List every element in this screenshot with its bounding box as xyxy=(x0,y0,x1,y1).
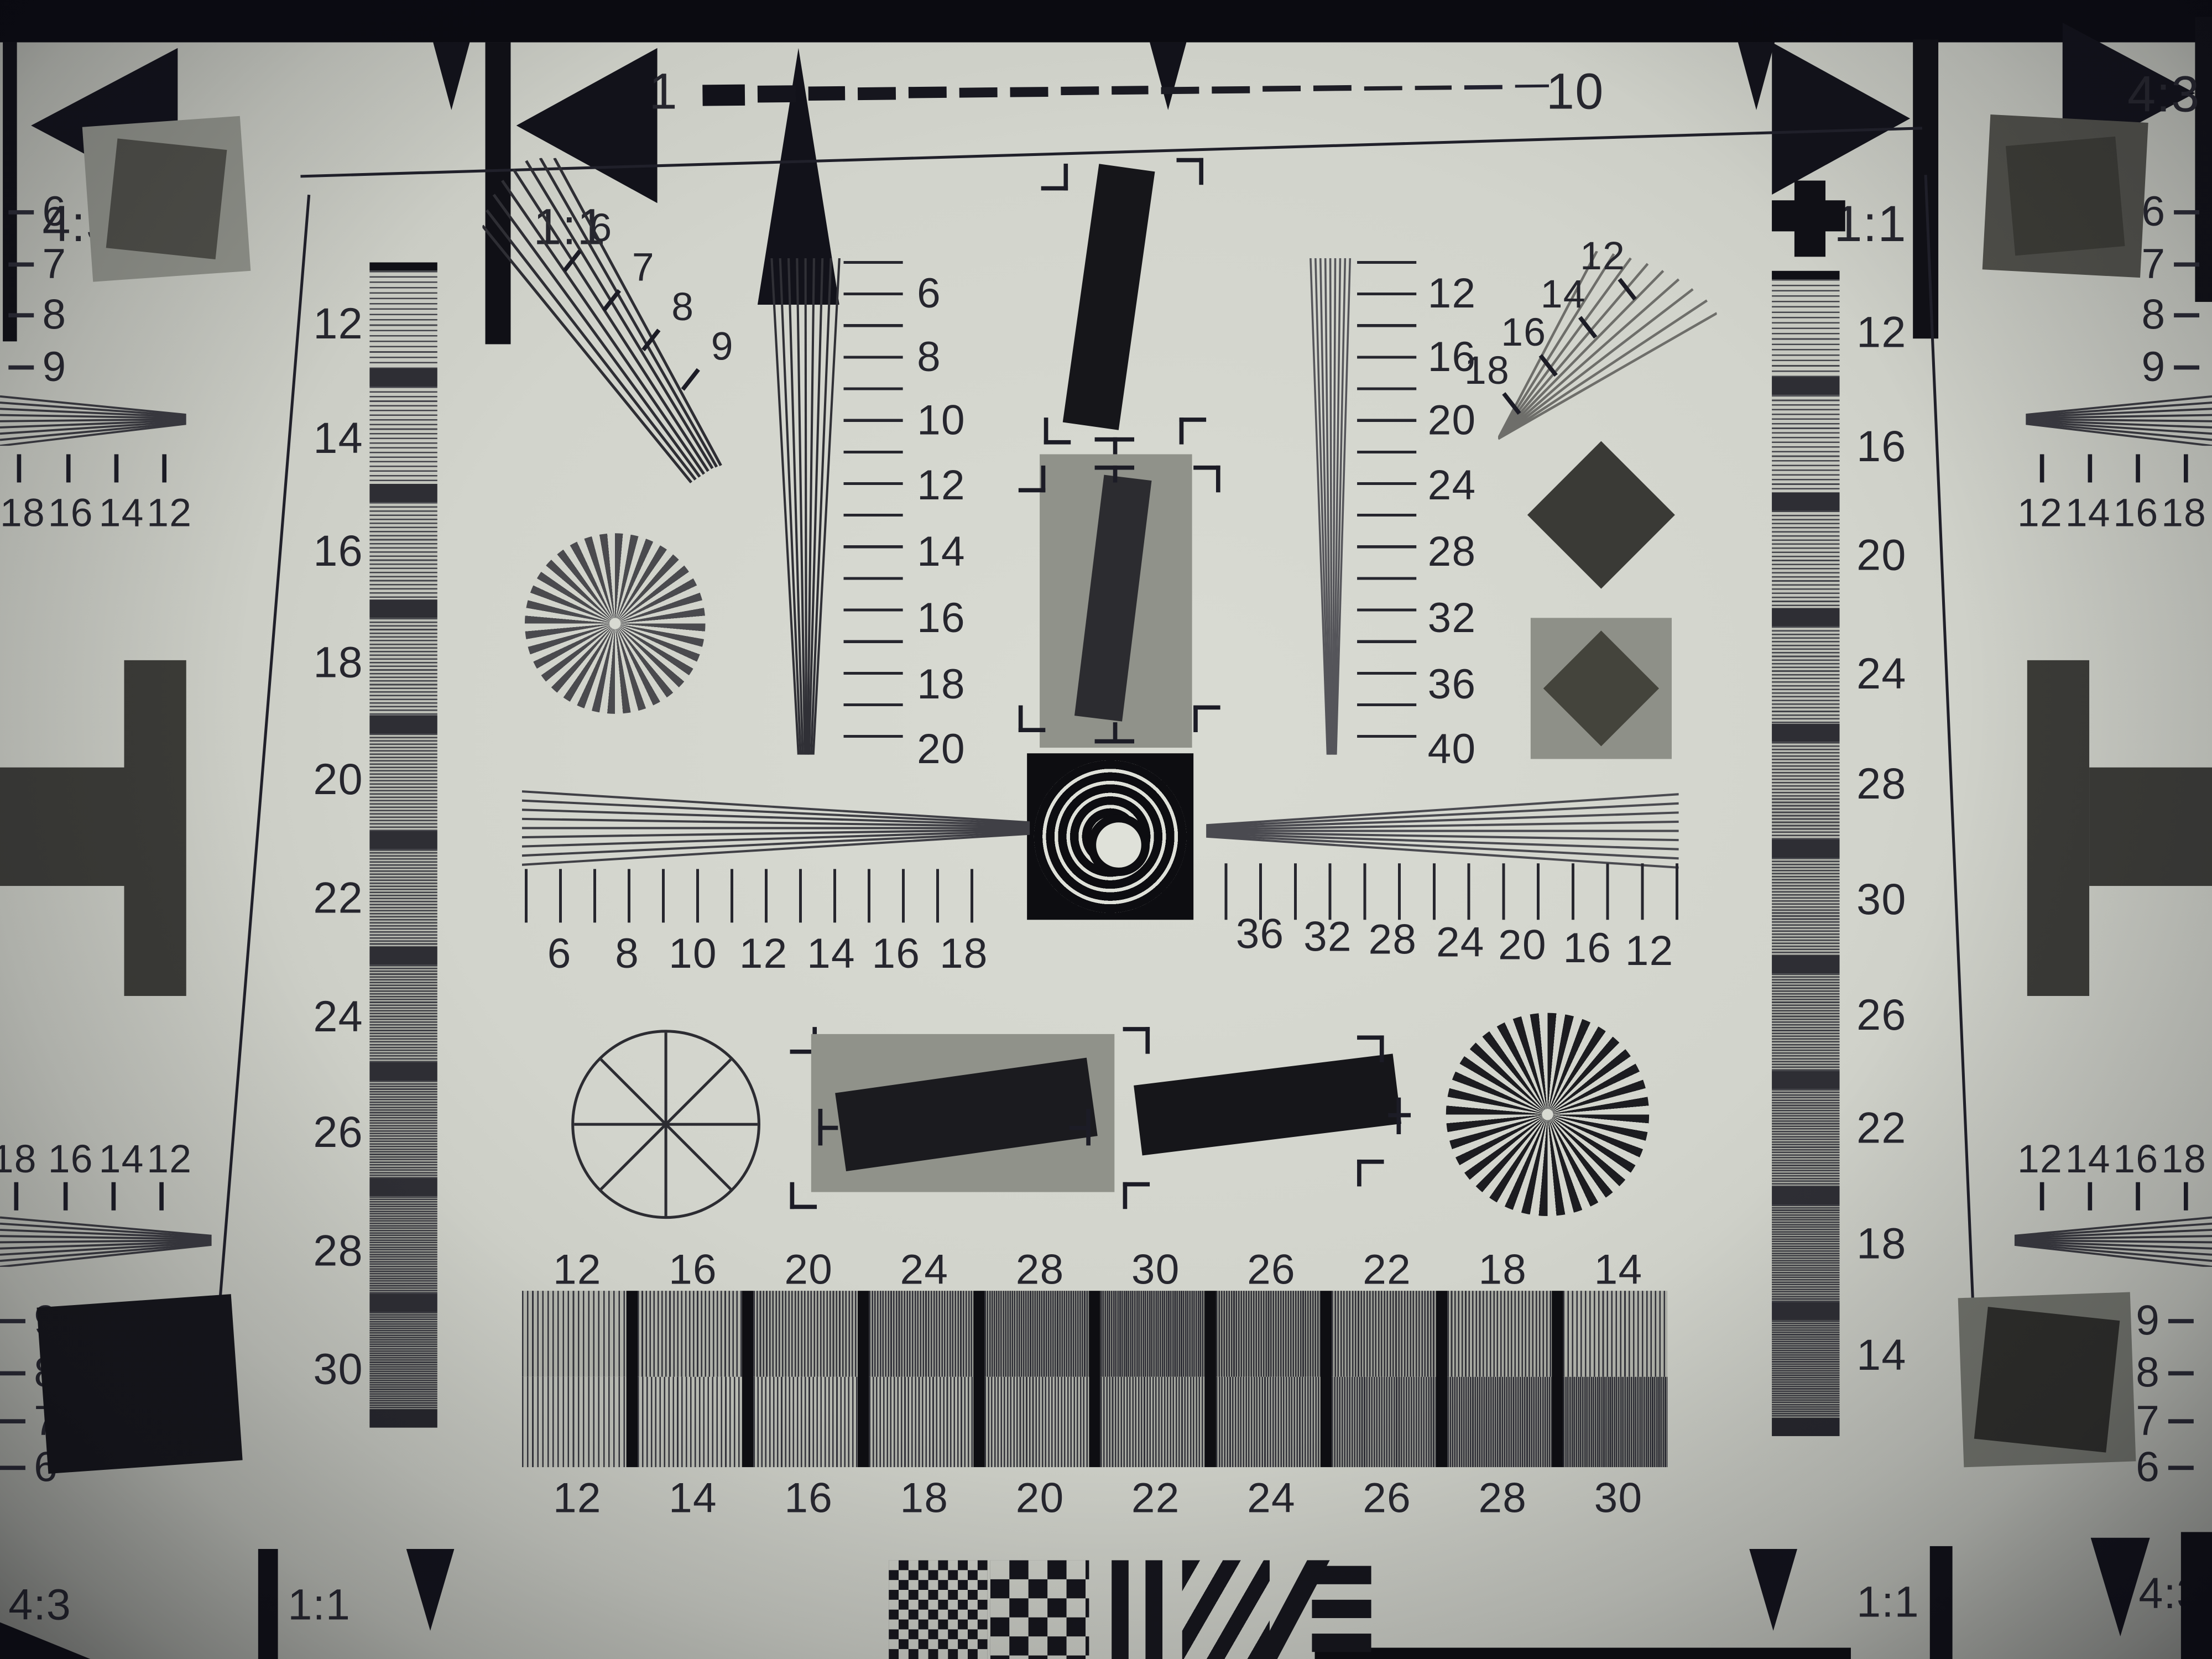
wedge-tick xyxy=(64,1182,68,1211)
checkerboard-coarse xyxy=(990,1560,1089,1659)
right-upper-scale-row: 8 xyxy=(2141,292,2199,340)
left-lower-horizontal-fan xyxy=(0,1216,212,1267)
wedge-tick xyxy=(162,454,166,482)
aspect-label-bottom-left-43: 4:3 xyxy=(8,1580,71,1631)
checkerboard-fine xyxy=(889,1560,988,1659)
wedge-scale-label: 12 xyxy=(147,1137,192,1182)
grayscale-step-label: 28 xyxy=(1856,759,1907,810)
crop-triangle-icon xyxy=(1749,1549,1797,1631)
wedge-scale-label: 12 xyxy=(2017,491,2063,536)
grayscale-step-label: 20 xyxy=(1856,530,1907,581)
grayscale-step-label: 24 xyxy=(1856,649,1907,700)
patch-bottom-label: 30 xyxy=(1594,1475,1643,1524)
aspect-crop-bar xyxy=(1930,1546,1953,1659)
wedge-tick xyxy=(2040,1182,2044,1211)
horizontal-scale-label: 12 xyxy=(1625,928,1674,977)
patch-bottom-label: 26 xyxy=(1363,1475,1411,1524)
bottom-black-band xyxy=(1315,1648,1851,1659)
patch-divider xyxy=(973,1291,984,1467)
scale-value: 8 xyxy=(2141,292,2166,338)
scale-dash xyxy=(8,365,34,369)
inner-tilted-square xyxy=(106,138,227,259)
registration-bracket xyxy=(1044,418,1071,444)
scale-dash xyxy=(2174,262,2200,266)
grayscale-step-label: 22 xyxy=(313,873,363,924)
vertical-scale-label: 20 xyxy=(1428,398,1477,446)
grayscale-step-label: 20 xyxy=(313,755,363,806)
ruler-dash-row xyxy=(702,72,1549,109)
chart-border-line-right xyxy=(1924,175,1975,1308)
wedge-scale-label: 18 xyxy=(2161,1137,2206,1182)
vertical-scale-label: 40 xyxy=(1428,727,1477,775)
left-vertical-wedge xyxy=(769,258,842,755)
wedge-scale-label: 16 xyxy=(2113,491,2158,536)
vertical-bar-pattern xyxy=(1112,1560,1129,1659)
grayscale-step-label: 18 xyxy=(313,638,363,688)
wedge-scale-label: 12 xyxy=(2017,1137,2063,1182)
resolution-patch xyxy=(1447,1291,1552,1467)
wedge-tick xyxy=(17,454,22,482)
registration-bracket xyxy=(1180,418,1206,444)
horizontal-scale-label: 12 xyxy=(739,931,788,979)
horizontal-scale-label: 14 xyxy=(807,931,855,979)
inner-diamond xyxy=(1543,630,1659,746)
scale-dash xyxy=(2168,1418,2194,1423)
patch-divider xyxy=(742,1291,753,1467)
grayscale-step-label: 26 xyxy=(1856,990,1907,1041)
wedge-tick xyxy=(2040,454,2044,482)
scale-dash xyxy=(2168,1318,2194,1323)
scale-dash xyxy=(2168,1465,2194,1469)
left-upper-scale-row: 9 xyxy=(8,344,66,392)
resolution-patch xyxy=(985,1291,1089,1467)
wedge-tick xyxy=(2136,1182,2140,1211)
horizontal-scale-label: 32 xyxy=(1303,914,1352,962)
right-lower-scale-row: 6 xyxy=(2136,1444,2194,1493)
grayscale-step-label: 14 xyxy=(313,413,363,464)
wedge-tick xyxy=(112,1182,116,1211)
wedge-scale-label: 14 xyxy=(99,491,144,536)
vertical-scale-label: 8 xyxy=(917,335,941,383)
vertical-scale-label: 28 xyxy=(1428,529,1477,577)
patch-bottom-label: 20 xyxy=(1016,1475,1065,1524)
registration-bracket xyxy=(1123,1027,1150,1053)
patch-bottom-label: 22 xyxy=(1131,1475,1180,1524)
right-upper-scale-row: 6 xyxy=(2141,189,2199,237)
grayscale-step-column-right xyxy=(1772,271,1839,1436)
grayscale-step-label: 30 xyxy=(1856,875,1907,926)
registration-t-mark xyxy=(1113,466,1118,483)
wedge-scale-label: 16 xyxy=(48,1137,93,1182)
wedge-scale-label: 18 xyxy=(2161,491,2206,536)
grayscale-step-label: 28 xyxy=(313,1226,363,1277)
patch-top-label: 28 xyxy=(1016,1247,1065,1295)
fan-label: 9 xyxy=(711,325,734,370)
grayscale-step-label: 30 xyxy=(313,1344,363,1395)
right-lower-scale-row: 9 xyxy=(2136,1298,2194,1346)
grayscale-step-label: 12 xyxy=(1856,307,1907,358)
inner-tilted-square xyxy=(2006,137,2125,256)
scale-dash xyxy=(0,1318,25,1323)
patch-divider xyxy=(858,1291,869,1467)
resolution-patch-row xyxy=(522,1291,1667,1467)
wedge-scale-label: 18 xyxy=(0,491,45,536)
wedge-scale-label: 16 xyxy=(48,491,93,536)
tilted-black-square xyxy=(36,1294,242,1474)
grayscale-step-column-left xyxy=(369,262,437,1427)
horizontal-scale-label: 28 xyxy=(1368,917,1417,965)
left-horizontal-tick-scale xyxy=(525,869,1004,922)
crop-triangle-icon xyxy=(1738,43,1775,110)
ruler-start-label: 1 xyxy=(649,62,677,121)
left-t-bar-vertical xyxy=(124,660,186,996)
patch-bottom-label: 24 xyxy=(1247,1475,1296,1524)
vertical-scale-label: 24 xyxy=(1428,463,1477,511)
concentric-rings-target xyxy=(1027,753,1193,920)
tilted-gray-square xyxy=(82,116,251,282)
patch-bottom-label: 28 xyxy=(1478,1475,1527,1524)
wedge-tick xyxy=(159,1182,164,1211)
vertical-scale-label: 18 xyxy=(917,661,966,709)
horizontal-scale-label: 10 xyxy=(669,931,717,979)
wedge-scale-label: 14 xyxy=(2065,1137,2111,1182)
patch-top-label: 22 xyxy=(1363,1247,1411,1295)
scale-value: 7 xyxy=(2136,1398,2160,1444)
registration-t-mark xyxy=(1070,1126,1089,1130)
patch-top-label: 16 xyxy=(669,1247,717,1295)
vertical-scale-label: 32 xyxy=(1428,596,1477,644)
scale-dash xyxy=(8,262,34,266)
left-vertical-tick-scale xyxy=(844,261,903,758)
wedge-tick xyxy=(114,454,119,482)
horizontal-scale-label: 20 xyxy=(1498,922,1547,971)
scale-value: 9 xyxy=(2136,1298,2160,1344)
horizontal-scale-label: 36 xyxy=(1236,911,1285,959)
wedge-scale-label: 18 xyxy=(0,1137,37,1182)
grayscale-step-label: 22 xyxy=(1856,1103,1907,1154)
wedge-tick xyxy=(66,454,71,482)
center-right-horizontal-fan xyxy=(1206,793,1679,869)
horizontal-scale-label: 18 xyxy=(940,931,988,979)
vertical-scale-label: 16 xyxy=(917,596,966,644)
scale-dash xyxy=(8,312,34,317)
grayscale-step-label: 26 xyxy=(313,1108,363,1159)
aspect-triangle-icon xyxy=(1772,43,1910,195)
right-t-bar-vertical xyxy=(2027,660,2089,996)
siemens-star xyxy=(1446,1013,1649,1216)
grayscale-step-label: 16 xyxy=(1856,422,1907,473)
vertical-scale-label: 14 xyxy=(917,529,966,577)
fan-label: 12 xyxy=(1580,234,1625,279)
registration-bracket xyxy=(1019,706,1045,732)
patch-top-label: 14 xyxy=(1594,1247,1643,1295)
vertical-scale-label: 12 xyxy=(1428,271,1477,319)
registration-bracket xyxy=(1357,1035,1384,1062)
fan-label: 6 xyxy=(589,206,612,251)
right-upper-horizontal-fan xyxy=(2026,395,2212,446)
vertical-scale-label: 36 xyxy=(1428,661,1477,709)
patch-divider xyxy=(1552,1291,1563,1467)
rings-center-dot xyxy=(1088,814,1150,876)
scale-value: 8 xyxy=(2136,1350,2160,1396)
siemens-star xyxy=(525,533,706,714)
resolution-patch xyxy=(869,1291,973,1467)
crop-triangle-icon xyxy=(406,1549,455,1631)
wedge-tick xyxy=(14,1182,19,1211)
patch-top-label: 18 xyxy=(1478,1247,1527,1295)
patch-divider xyxy=(1089,1291,1100,1467)
registration-t-mark xyxy=(818,1126,838,1130)
vertical-scale-label: 12 xyxy=(917,463,966,511)
tilted-gray-square xyxy=(1983,114,2148,278)
scale-dash xyxy=(0,1418,25,1423)
horizontal-scale-label: 16 xyxy=(872,931,921,979)
inner-tilted-square xyxy=(1974,1307,2120,1453)
registration-bracket xyxy=(1357,1160,1384,1186)
ruler-end-label: 10 xyxy=(1546,62,1604,121)
left-upper-scale-row: 8 xyxy=(8,292,66,340)
resolution-patch xyxy=(1216,1291,1321,1467)
grayscale-step-label: 14 xyxy=(1856,1331,1907,1381)
scale-dash xyxy=(2174,365,2200,369)
scale-value: 8 xyxy=(43,292,67,338)
horizontal-scale-label: 8 xyxy=(615,931,639,979)
left-upper-scale-row: 6 xyxy=(8,189,66,237)
diagonal-stripe-pattern xyxy=(1182,1560,1270,1659)
fan-label: 14 xyxy=(1541,272,1586,317)
horizontal-scale-label: 24 xyxy=(1436,920,1485,968)
wedge-tick xyxy=(2184,454,2188,482)
vertical-scale-label: 10 xyxy=(917,398,966,446)
registration-t-mark xyxy=(1113,722,1118,742)
patch-bottom-label: 16 xyxy=(784,1475,833,1524)
scale-value: 9 xyxy=(43,344,67,390)
aspect-label-bottom-right-11: 1:1 xyxy=(1856,1577,1919,1628)
right-vertical-tick-scale xyxy=(1357,261,1416,758)
patch-bottom-label: 14 xyxy=(669,1475,717,1524)
center-left-horizontal-fan xyxy=(522,790,1030,867)
patch-top-label: 12 xyxy=(553,1247,602,1295)
scale-value: 6 xyxy=(43,189,67,236)
resolution-test-chart-photo: 4:3 1:1 1:1 4:3 1 10 6 7 8 9 18 16 14 12… xyxy=(0,0,2212,1659)
wedge-tick xyxy=(2136,454,2140,482)
aspect-label-top-right-43: 4:3 xyxy=(2127,65,2200,124)
vertical-scale-label: 20 xyxy=(917,727,966,775)
resolution-patch xyxy=(1563,1291,1668,1467)
scale-dash xyxy=(0,1465,25,1469)
left-upper-horizontal-fan xyxy=(0,395,186,446)
tilted-black-bar xyxy=(1063,164,1155,430)
registration-t-mark xyxy=(1388,1113,1411,1118)
dark-diamond xyxy=(1527,441,1675,589)
resolution-patch xyxy=(1332,1291,1436,1467)
vertical-bar-pattern xyxy=(1145,1560,1162,1659)
grayscale-step-label: 24 xyxy=(313,992,363,1042)
scale-value: 6 xyxy=(2141,189,2166,236)
tilted-black-bar-2 xyxy=(1134,1053,1401,1155)
vertical-scale-label: 6 xyxy=(917,271,941,319)
registration-bracket xyxy=(1193,466,1220,492)
scale-value: 7 xyxy=(2141,241,2166,288)
registration-bracket xyxy=(1041,164,1068,190)
registration-bracket xyxy=(1123,1182,1150,1209)
grayscale-step-label: 18 xyxy=(1856,1219,1907,1270)
aspect-label-bottom-left-11: 1:1 xyxy=(288,1580,351,1631)
registration-bracket xyxy=(1193,706,1220,732)
horizontal-scale-label: 16 xyxy=(1563,925,1612,973)
left-t-bar-horizontal xyxy=(0,768,127,886)
resolution-patch xyxy=(753,1291,858,1467)
right-upper-scale-row: 7 xyxy=(2141,241,2199,289)
horizontal-scale-label: 6 xyxy=(547,931,572,979)
wedge-scale-label: 12 xyxy=(147,491,192,536)
resolution-patch xyxy=(638,1291,742,1467)
scale-value: 9 xyxy=(2141,344,2166,390)
left-upper-scale-row: 7 xyxy=(8,241,66,289)
scale-dash xyxy=(2168,1371,2194,1375)
right-lower-scale-row: 8 xyxy=(2136,1350,2194,1398)
resolution-patch xyxy=(522,1291,627,1467)
wedge-scale-label: 14 xyxy=(2065,491,2111,536)
top-black-band xyxy=(0,0,2212,43)
aspect-crop-bar xyxy=(258,1549,278,1659)
fan-label: 8 xyxy=(671,285,694,330)
patch-bottom-label: 18 xyxy=(900,1475,949,1524)
right-t-bar-horizontal xyxy=(2089,768,2212,886)
spoked-wheel-circle xyxy=(571,1030,760,1219)
chart-border-line-left xyxy=(217,195,310,1317)
patch-top-label: 20 xyxy=(784,1247,833,1295)
scale-value: 7 xyxy=(43,241,67,288)
scale-dash xyxy=(0,1371,25,1375)
tilted-gray-square xyxy=(1958,1292,2136,1467)
fan-label: 7 xyxy=(632,246,655,291)
right-horizontal-tick-scale xyxy=(1224,863,1678,920)
patch-divider xyxy=(1205,1291,1216,1467)
patch-top-label: 26 xyxy=(1247,1247,1296,1295)
scale-dash xyxy=(2174,210,2200,214)
right-vertical-wedge xyxy=(1309,258,1352,755)
grayscale-step-label: 16 xyxy=(313,526,363,577)
wedge-scale-label: 16 xyxy=(2113,1137,2158,1182)
horizontal-bar-pattern xyxy=(1281,1560,1371,1659)
patch-top-label: 30 xyxy=(1131,1247,1180,1295)
scale-dash xyxy=(2174,312,2200,317)
crop-triangle-icon xyxy=(433,43,469,110)
grayscale-step-label: 12 xyxy=(313,299,363,350)
patch-top-label: 24 xyxy=(900,1247,949,1295)
wedge-tick xyxy=(2088,454,2093,482)
patch-divider xyxy=(627,1291,638,1467)
wedge-tick xyxy=(2184,1182,2188,1211)
registration-bracket xyxy=(1019,466,1045,492)
corner-bar xyxy=(2181,1532,2212,1659)
registration-bracket xyxy=(790,1182,817,1209)
gray-square-with-diamond xyxy=(1531,618,1672,759)
patch-divider xyxy=(1321,1291,1332,1467)
right-lower-horizontal-fan xyxy=(2015,1216,2212,1267)
resolution-patch xyxy=(1100,1291,1205,1467)
patch-bottom-label: 12 xyxy=(553,1475,602,1524)
scale-dash xyxy=(8,210,34,214)
scale-value: 6 xyxy=(2136,1444,2160,1491)
fan-label: 18 xyxy=(1464,348,1510,394)
right-lower-scale-row: 7 xyxy=(2136,1398,2194,1446)
wedge-tick xyxy=(2088,1182,2093,1211)
right-upper-scale-row: 9 xyxy=(2141,344,2199,392)
wedge-scale-label: 14 xyxy=(99,1137,144,1182)
patch-divider xyxy=(1436,1291,1447,1467)
registration-bracket xyxy=(1177,158,1203,185)
